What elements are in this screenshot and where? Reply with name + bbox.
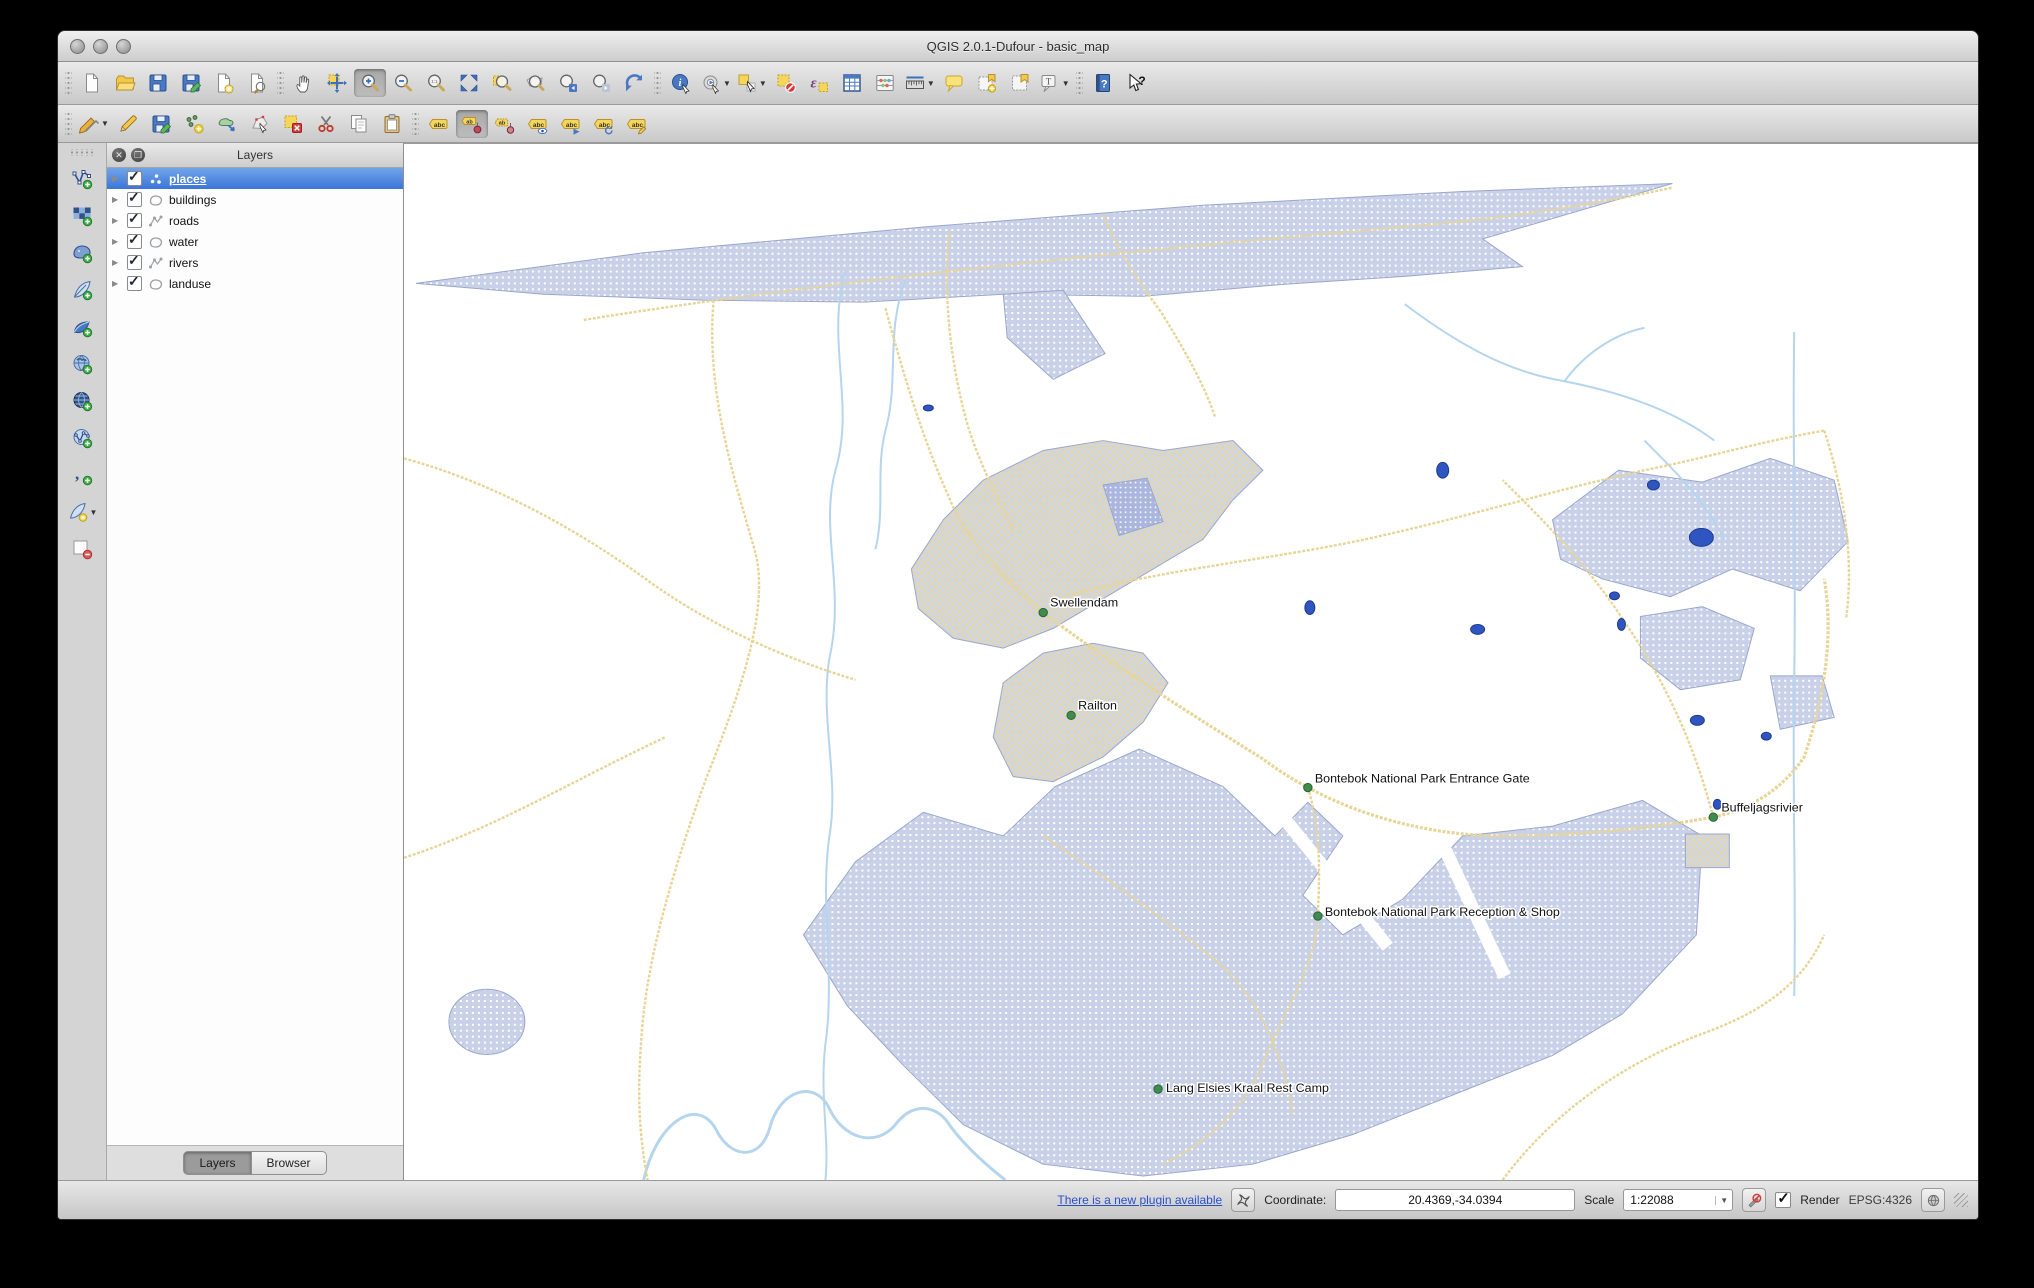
dropdown-arrow-icon[interactable]: ▼ [759,79,767,88]
show-hide-labels-button[interactable]: abc [522,110,554,138]
zoom-native-button[interactable]: 1:1 [420,69,452,97]
add-vector-layer-button[interactable] [66,165,98,193]
crs-status: EPSG:4326 [1849,1193,1912,1207]
map-tips-icon [943,72,965,94]
composer-manager-button[interactable] [241,69,273,97]
move-feature-icon [216,113,238,135]
scale-value: 1:22088 [1624,1193,1715,1207]
resize-grip[interactable] [1954,1193,1968,1207]
close-window-button[interactable] [70,39,85,54]
water-feature [1690,715,1704,725]
run-feature-action-icon [700,72,722,94]
cut-features-button[interactable] [310,110,342,138]
layer-line-icon [148,256,163,270]
crs-globe-icon[interactable] [1921,1188,1945,1212]
new-print-composer-button[interactable] [208,69,240,97]
layer-label: landuse [169,277,211,291]
remove-layer-icon [71,538,93,560]
manage-layers-toolbar: ,▼ [58,143,106,1180]
place-label: Buffeljagsrivier [1721,800,1803,814]
move-label-icon: abc [560,113,582,135]
pin-unpin-labels-button[interactable]: ab [456,110,488,138]
select-by-expression-button[interactable]: ε [803,69,835,97]
expand-arrow-icon[interactable]: ▶ [112,216,121,225]
save-project-as-button[interactable] [175,69,207,97]
copy-features-button[interactable] [343,110,375,138]
add-delimited-text-layer-button[interactable]: , [66,461,98,489]
add-wms-layer-button[interactable] [66,350,98,378]
expand-arrow-icon[interactable]: ▶ [112,237,121,246]
new-plugin-link[interactable]: There is a new plugin available [1057,1193,1222,1207]
layer-item-rivers[interactable]: ▶rivers [107,252,403,273]
layer-visibility-checkbox[interactable] [127,276,142,291]
remove-layer-button[interactable] [66,535,98,563]
zoom-to-selection-icon [491,72,513,94]
highlight-pinned-labels-icon: ab [494,113,516,135]
new-bookmark-button[interactable] [971,69,1003,97]
svg-text:?: ? [1138,74,1145,88]
paste-features-button[interactable] [376,110,408,138]
deselect-features-icon [775,72,797,94]
main-toolbar: 1:1i▼▼ε▼T▼?? [58,62,1978,105]
pan-map-icon [293,72,315,94]
svg-text:abc: abc [632,121,644,128]
add-mssql-layer-icon [71,316,93,338]
change-label-button[interactable]: abc [621,110,653,138]
new-project-button[interactable] [76,69,108,97]
place-label: Railton [1078,699,1117,713]
place-label: Swellendam [1050,596,1118,610]
scale-label: Scale [1584,1193,1614,1207]
current-edits-icon [78,113,100,135]
zoom-out-icon [392,72,414,94]
scale-combo[interactable]: 1:22088 ▼ [1623,1189,1733,1211]
zoom-next-icon [590,72,612,94]
copy-features-icon [348,113,370,135]
water-feature [1305,601,1315,615]
tab-browser[interactable]: Browser [252,1151,327,1175]
show-bookmarks-icon [1009,72,1031,94]
delete-selected-button[interactable] [277,110,309,138]
new-bookmark-icon [976,72,998,94]
pan-to-selection-button[interactable] [321,69,353,97]
add-wfs-layer-button[interactable] [66,424,98,452]
window-title: QGIS 2.0.1-Dufour - basic_map [927,39,1110,54]
window-controls [70,39,131,54]
layer-label: roads [169,214,199,228]
layer-visibility-checkbox[interactable] [127,255,142,270]
layer-polygon-icon [148,235,163,249]
dropdown-arrow-icon[interactable]: ▼ [927,79,935,88]
panel-tabs: LayersBrowser [107,1146,403,1180]
help-contents-icon: ? [1092,72,1114,94]
add-spatialite-layer-icon [71,279,93,301]
expand-arrow-icon[interactable]: ▶ [112,258,121,267]
place-label: Bontebok National Park Reception & Shop [1325,905,1560,919]
svg-text:?: ? [1101,79,1108,91]
place-label: Bontebok National Park Entrance Gate [1315,772,1530,786]
water-feature [1689,529,1713,547]
digitizing-toolbar: ▼abcabababcabcabcabc [58,105,1978,143]
node-tool-button[interactable] [244,110,276,138]
layers-panel: ✕ ❐ Layers ▶places▶buildings▶roads▶water… [106,143,404,1180]
open-project-icon [114,72,136,94]
layer-list: ▶places▶buildings▶roads▶water▶rivers▶lan… [107,168,403,1146]
zoom-to-layer-icon [524,72,546,94]
current-edits-button[interactable]: ▼ [76,110,111,138]
field-calculator-button[interactable] [869,69,901,97]
zoom-last-icon [557,72,579,94]
place-point [1039,608,1047,616]
zoom-to-selection-button[interactable] [486,69,518,97]
open-attribute-table-button[interactable] [836,69,868,97]
run-feature-action-button[interactable]: ▼ [698,69,733,97]
add-wcs-layer-icon [71,390,93,412]
stop-render-icon[interactable] [1742,1188,1766,1212]
toolbar-handle [65,71,72,95]
layer-polygon-icon [148,277,163,291]
add-postgis-layer-button[interactable] [66,239,98,267]
layer-item-buildings[interactable]: ▶buildings [107,189,403,210]
layer-point-icon [148,172,163,186]
new-project-icon [81,72,103,94]
map-svg: SwellendamRailtonBontebok National Park … [404,144,1978,1180]
plugin-icon[interactable] [1231,1188,1255,1212]
layer-label: rivers [169,256,198,270]
map-canvas[interactable]: SwellendamRailtonBontebok National Park … [404,143,1978,1180]
place-point [1709,813,1717,821]
layer-line-icon [148,214,163,228]
dropdown-arrow-icon[interactable]: ▼ [723,79,731,88]
place-label: Lang Elsies Kraal Rest Camp [1166,1081,1329,1095]
move-label-button[interactable]: abc [555,110,587,138]
water-feature [1609,592,1619,600]
new-print-composer-icon [213,72,235,94]
labeling-options-icon: abc [428,113,450,135]
toolbar-handle [277,71,284,95]
zoom-in-icon [359,72,381,94]
layer-label: places [169,172,206,186]
save-layer-edits-button[interactable] [145,110,177,138]
place-point [1154,1085,1162,1093]
new-shapefile-layer-button[interactable]: ▼ [65,498,100,526]
change-label-icon: abc [626,113,648,135]
water-feature [1647,480,1659,490]
add-feature-button[interactable] [178,110,210,138]
open-project-button[interactable] [109,69,141,97]
save-project-as-icon [180,72,202,94]
place-point [1304,783,1312,791]
whats-this-button[interactable]: ? [1120,69,1152,97]
select-features-icon [736,72,758,94]
new-shapefile-layer-icon [67,501,89,523]
titlebar[interactable]: QGIS 2.0.1-Dufour - basic_map [58,31,1978,62]
zoom-to-layer-button[interactable] [519,69,551,97]
water-feature [1713,799,1721,809]
expand-arrow-icon[interactable]: ▶ [112,195,121,204]
coordinate-label: Coordinate: [1264,1193,1326,1207]
place-point [1314,912,1322,920]
save-project-button[interactable] [142,69,174,97]
map-refresh-button[interactable] [618,69,650,97]
panel-float-icon[interactable]: ❐ [131,148,145,162]
add-raster-layer-icon [71,205,93,227]
zoom-out-button[interactable] [387,69,419,97]
water-feature [1617,619,1625,631]
labeling-options-button[interactable]: abc [423,110,455,138]
help-contents-button[interactable]: ? [1087,69,1119,97]
save-project-icon [147,72,169,94]
add-spatialite-layer-button[interactable] [66,276,98,304]
water-feature [1471,624,1485,634]
water-feature [1761,732,1771,740]
panel-close-icon[interactable]: ✕ [112,148,126,162]
expand-arrow-icon[interactable]: ▶ [112,174,121,183]
toolbar-handle [412,112,419,136]
zoom-last-button[interactable] [552,69,584,97]
deselect-features-button[interactable] [770,69,802,97]
zoom-window-button[interactable] [116,39,131,54]
layers-panel-header: ✕ ❐ Layers [107,143,403,168]
paste-features-icon [381,113,403,135]
add-delimited-text-layer-icon: , [71,464,93,486]
svg-text:,: , [75,464,79,483]
select-features-button[interactable]: ▼ [734,69,769,97]
zoom-next-button[interactable] [585,69,617,97]
identify-features-button[interactable]: i [665,69,697,97]
layer-label: water [169,235,198,249]
add-feature-icon [183,113,205,135]
pan-map-button[interactable] [288,69,320,97]
coordinate-input[interactable]: 20.4369,-34.0394 [1335,1189,1575,1211]
toggle-editing-button[interactable] [112,110,144,138]
add-postgis-layer-icon [71,242,93,264]
add-raster-layer-button[interactable] [66,202,98,230]
chevron-down-icon[interactable]: ▼ [1715,1196,1732,1205]
field-calculator-icon [874,72,896,94]
identify-features-icon: i [670,72,692,94]
delete-selected-icon [282,113,304,135]
dropdown-arrow-icon[interactable]: ▼ [101,119,109,128]
whats-this-icon: ? [1125,72,1147,94]
toolbar-handle [65,112,72,136]
add-vector-layer-icon [71,168,93,190]
save-layer-edits-icon [150,113,172,135]
zoom-full-button[interactable] [453,69,485,97]
dropdown-arrow-icon[interactable]: ▼ [90,508,98,517]
toolbar-handle [1076,71,1083,95]
node-tool-icon [249,113,271,135]
layer-item-places[interactable]: ▶places [107,168,403,189]
add-mssql-layer-button[interactable] [66,313,98,341]
zoom-in-button[interactable] [354,69,386,97]
layer-visibility-checkbox[interactable] [127,234,142,249]
layer-item-landuse[interactable]: ▶landuse [107,273,403,294]
layer-label: buildings [169,193,216,207]
layer-visibility-checkbox[interactable] [127,213,142,228]
add-wcs-layer-button[interactable] [66,387,98,415]
move-feature-button[interactable] [211,110,243,138]
measure-line-icon [904,72,926,94]
svg-text:1:1: 1:1 [431,79,438,84]
toolbar-handle [69,149,95,156]
svg-text:abc: abc [533,121,545,128]
select-by-expression-icon: ε [808,72,830,94]
map-tips-button[interactable] [938,69,970,97]
layer-visibility-checkbox[interactable] [127,192,142,207]
qgis-window: QGIS 2.0.1-Dufour - basic_map 1:1i▼▼ε▼T▼… [57,30,1979,1220]
svg-text:ab: ab [466,119,473,125]
layer-item-water[interactable]: ▶water [107,231,403,252]
svg-text:i: i [679,78,682,89]
highlight-pinned-labels-button[interactable]: ab [489,110,521,138]
cut-features-icon [315,113,337,135]
measure-line-button[interactable]: ▼ [902,69,937,97]
toggle-editing-icon [117,113,139,135]
svg-text:abc: abc [434,121,446,128]
show-hide-labels-icon: abc [527,113,549,135]
map-refresh-icon [623,72,645,94]
text-annotation-icon: T [1039,72,1061,94]
add-wms-layer-icon [71,353,93,375]
water-feature [1437,462,1449,478]
text-annotation-button[interactable]: T▼ [1037,69,1072,97]
zoom-native-icon: 1:1 [425,72,447,94]
pin-unpin-labels-icon: ab [461,113,483,135]
composer-manager-icon [246,72,268,94]
svg-text:ab: ab [499,120,506,126]
layer-item-roads[interactable]: ▶roads [107,210,403,231]
layer-visibility-checkbox[interactable] [127,171,142,186]
layers-panel-title: Layers [237,148,273,162]
svg-text:ε: ε [810,76,817,92]
svg-text:abc: abc [566,121,578,128]
show-bookmarks-button[interactable] [1004,69,1036,97]
toolbar-handle [654,71,661,95]
tab-layers[interactable]: Layers [183,1151,251,1175]
zoom-full-icon [458,72,480,94]
rotate-label-button[interactable]: abc [588,110,620,138]
status-bar: There is a new plugin available Coordina… [58,1180,1978,1219]
place-point [1067,711,1075,719]
water-feature [923,405,933,411]
render-label: Render [1800,1193,1839,1207]
layer-polygon-icon [148,193,163,207]
minimize-window-button[interactable] [93,39,108,54]
dropdown-arrow-icon[interactable]: ▼ [1062,79,1070,88]
add-wfs-layer-icon [71,427,93,449]
render-checkbox[interactable] [1775,1192,1791,1208]
svg-text:T: T [1046,77,1052,87]
open-attribute-table-icon [841,72,863,94]
rotate-label-icon: abc [593,113,615,135]
expand-arrow-icon[interactable]: ▶ [112,279,121,288]
pan-to-selection-icon [326,72,348,94]
